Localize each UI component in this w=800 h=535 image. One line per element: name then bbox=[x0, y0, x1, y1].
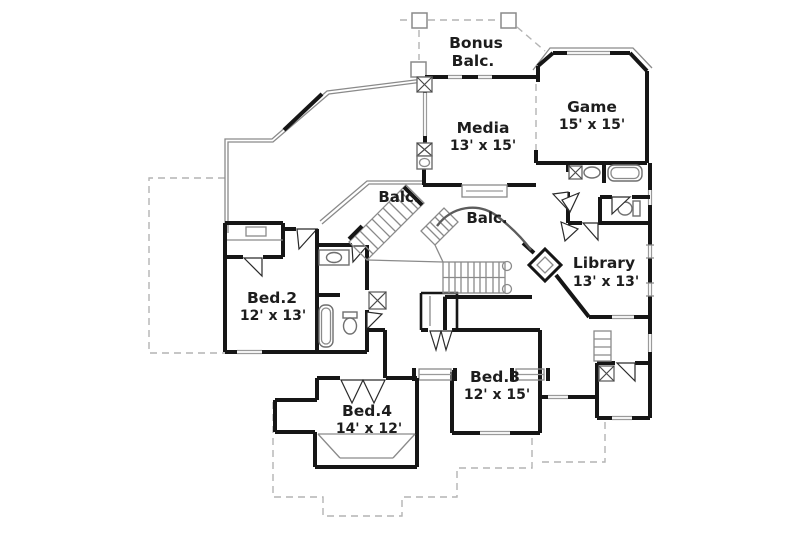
library-dims: 13' x 13' bbox=[573, 274, 639, 290]
media-label: Media bbox=[457, 119, 510, 137]
bed3-dims: 12' x 15' bbox=[464, 387, 530, 403]
bonus-balcony-label-2: Balc. bbox=[452, 52, 495, 70]
room-bed3 bbox=[414, 293, 548, 435]
stair-straight-run bbox=[443, 262, 512, 294]
hall-window-seat bbox=[414, 368, 455, 381]
closet-bottom-right bbox=[542, 317, 652, 420]
vanity-sink-fixture bbox=[569, 166, 600, 179]
roofline-bottom-dashed bbox=[273, 402, 605, 516]
bed2-closet-interior bbox=[227, 227, 283, 240]
linen-shelves bbox=[594, 331, 611, 361]
floor-plan-page: Bonus Balc. Media 13' x 15' Game 15' x 1… bbox=[0, 0, 800, 535]
floor-plan-drawing: Bonus Balc. Media 13' x 15' Game 15' x 1… bbox=[0, 0, 800, 535]
roofline-left-dashed bbox=[149, 178, 225, 353]
bathtub-fixture bbox=[608, 165, 642, 181]
balcony-left-label: Balc. bbox=[378, 188, 419, 206]
game-dims: 15' x 15' bbox=[559, 117, 625, 133]
bathtub-fixture bbox=[319, 305, 333, 347]
vanity-sink-fixture bbox=[319, 250, 349, 265]
balcony-right-label: Balc. bbox=[466, 209, 507, 227]
media-dims: 13' x 15' bbox=[450, 138, 516, 154]
bed2-label: Bed.2 bbox=[247, 289, 297, 307]
media-bay-window bbox=[462, 185, 507, 197]
bed3-label: Bed.3 bbox=[470, 368, 520, 386]
open-area-edge bbox=[225, 79, 423, 233]
game-label: Game bbox=[567, 98, 617, 116]
toilet-fixture bbox=[343, 312, 357, 334]
bed4-dims: 14' x 12' bbox=[336, 421, 402, 437]
library-label: Library bbox=[573, 254, 635, 272]
wall-chase-symbols bbox=[417, 77, 432, 169]
tray-ceiling-lines bbox=[318, 434, 415, 458]
bed2-dims: 12' x 13' bbox=[240, 308, 306, 324]
bonus-balcony-label: Bonus bbox=[449, 34, 503, 52]
bed4-label: Bed.4 bbox=[342, 402, 392, 420]
